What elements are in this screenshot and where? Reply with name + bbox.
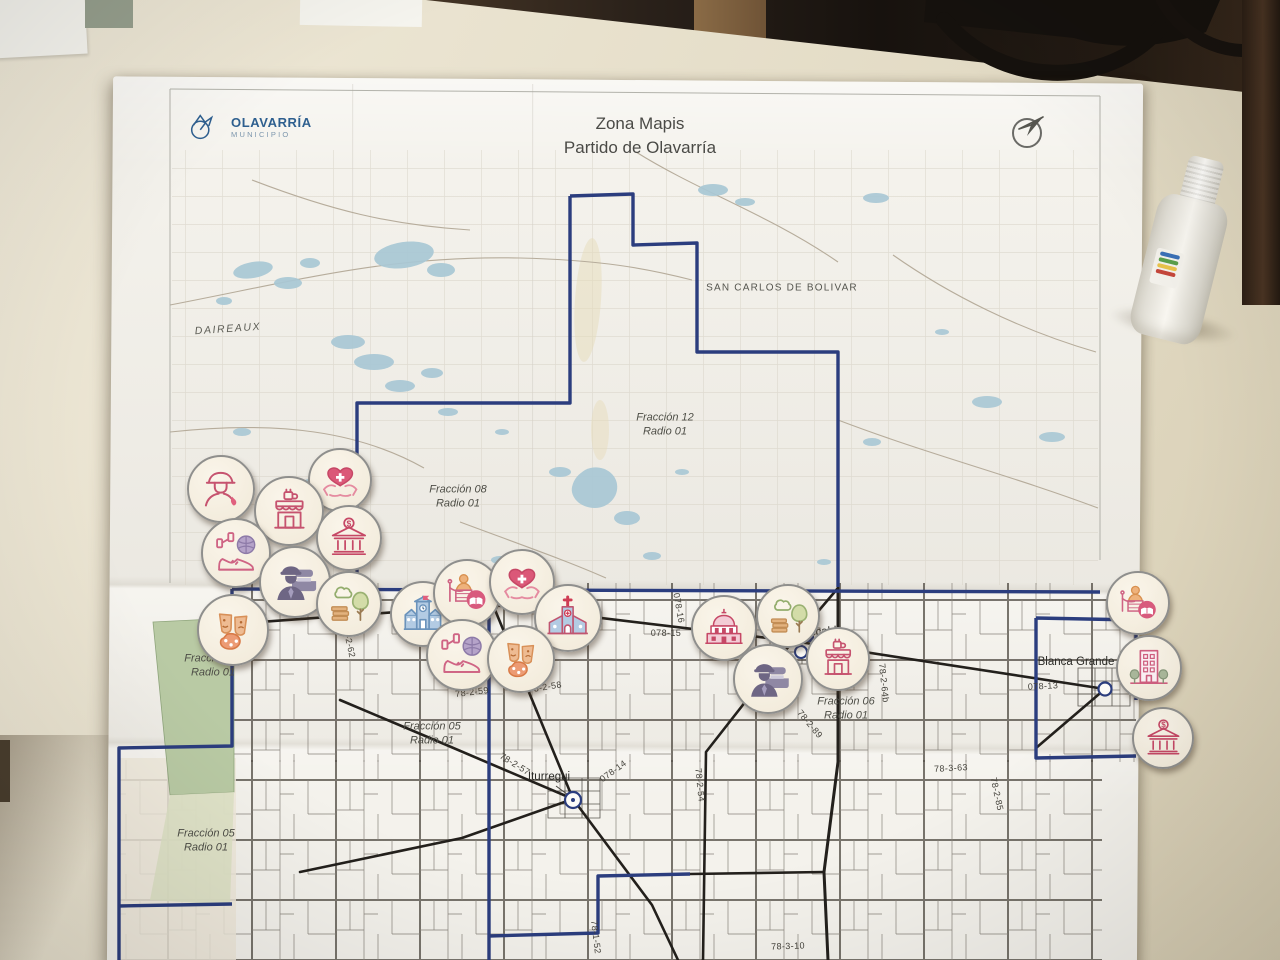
sticker-city-building-icon	[1116, 635, 1182, 701]
sticker-culture-icon	[197, 594, 269, 666]
municipality-logo-icon	[186, 112, 224, 142]
health-icon	[499, 559, 545, 605]
paper-scrap	[300, 0, 423, 27]
sticker-cafe-icon	[806, 627, 870, 691]
municipality-logo: OLAVARRÍA MUNICIPIO	[186, 112, 312, 142]
fraction-label-fracci-n-12: Fracción 12Radio 01	[636, 411, 693, 440]
paper-crease	[532, 84, 534, 584]
park-icon	[766, 594, 810, 638]
paper-scrap	[0, 0, 88, 58]
culture-icon	[208, 605, 258, 655]
sticker-police-icon	[733, 644, 803, 714]
map-title-line1: Zona Mapis	[564, 112, 716, 136]
logo-title: OLAVARRÍA	[231, 116, 312, 129]
sticker-park-icon	[756, 584, 820, 648]
map-label-iturregui: Iturregui	[528, 771, 570, 783]
parcel-code-078-13: 078-13	[1028, 680, 1059, 692]
fraction-label-fracci-n-05: Fracción 05Radio 01	[177, 827, 234, 856]
bank-icon	[1142, 717, 1185, 760]
park-icon	[326, 581, 372, 627]
map-label-blanca-grande: Blanca Grande	[1038, 656, 1115, 668]
culture-icon	[497, 635, 544, 682]
sticker-park-icon	[316, 571, 382, 637]
bottle-label	[1149, 247, 1185, 289]
fraction-label-fracci-n-05: Fracción 05Radio 01	[403, 720, 460, 749]
table-edge	[0, 740, 10, 802]
parcel-code-78-3-10: 78-3-10	[771, 940, 805, 951]
sticker-culture-icon	[487, 625, 555, 693]
police-icon	[270, 557, 320, 607]
fraction-label-fracci-n-08: Fracción 08Radio 01	[429, 483, 486, 512]
sports-icon	[212, 529, 261, 578]
sticker-museum-icon	[1106, 571, 1170, 635]
wall-object	[85, 0, 133, 28]
sticker-bank-icon	[1132, 707, 1194, 769]
firefighter-icon	[197, 465, 244, 512]
photo-scene: OLAVARRÍA MUNICIPIO Zona Mapis Partido d…	[0, 0, 1280, 960]
fraction-label-fracci-n-06: Fracción 06Radio 01	[817, 695, 874, 724]
sticker-firefighter-icon	[187, 455, 255, 523]
cafe-icon	[816, 637, 860, 681]
map-title-line2: Partido de Olavarría	[564, 136, 716, 160]
police-icon	[744, 655, 793, 704]
compass-icon	[1006, 110, 1052, 157]
sticker-bank-icon	[316, 505, 382, 571]
parcel-code-078-15: 078-15	[651, 628, 681, 638]
museum-icon	[443, 569, 490, 616]
map-label-san-carlos-de-bolivar: SAN CARLOS DE BOLIVAR	[706, 283, 858, 294]
parcel-code-78-3-63: 78-3-63	[934, 762, 968, 774]
government-icon	[701, 605, 747, 651]
bank-icon	[326, 515, 372, 561]
map-title: Zona Mapis Partido de Olavarría	[564, 112, 716, 160]
door-frame-post	[1242, 0, 1280, 305]
logo-subtitle: MUNICIPIO	[231, 131, 312, 139]
health-icon	[318, 458, 362, 502]
sports-icon	[437, 630, 487, 680]
church-icon	[544, 594, 591, 641]
museum-icon	[1116, 581, 1160, 625]
city-building-icon	[1126, 645, 1172, 691]
cafe-icon	[265, 487, 314, 536]
